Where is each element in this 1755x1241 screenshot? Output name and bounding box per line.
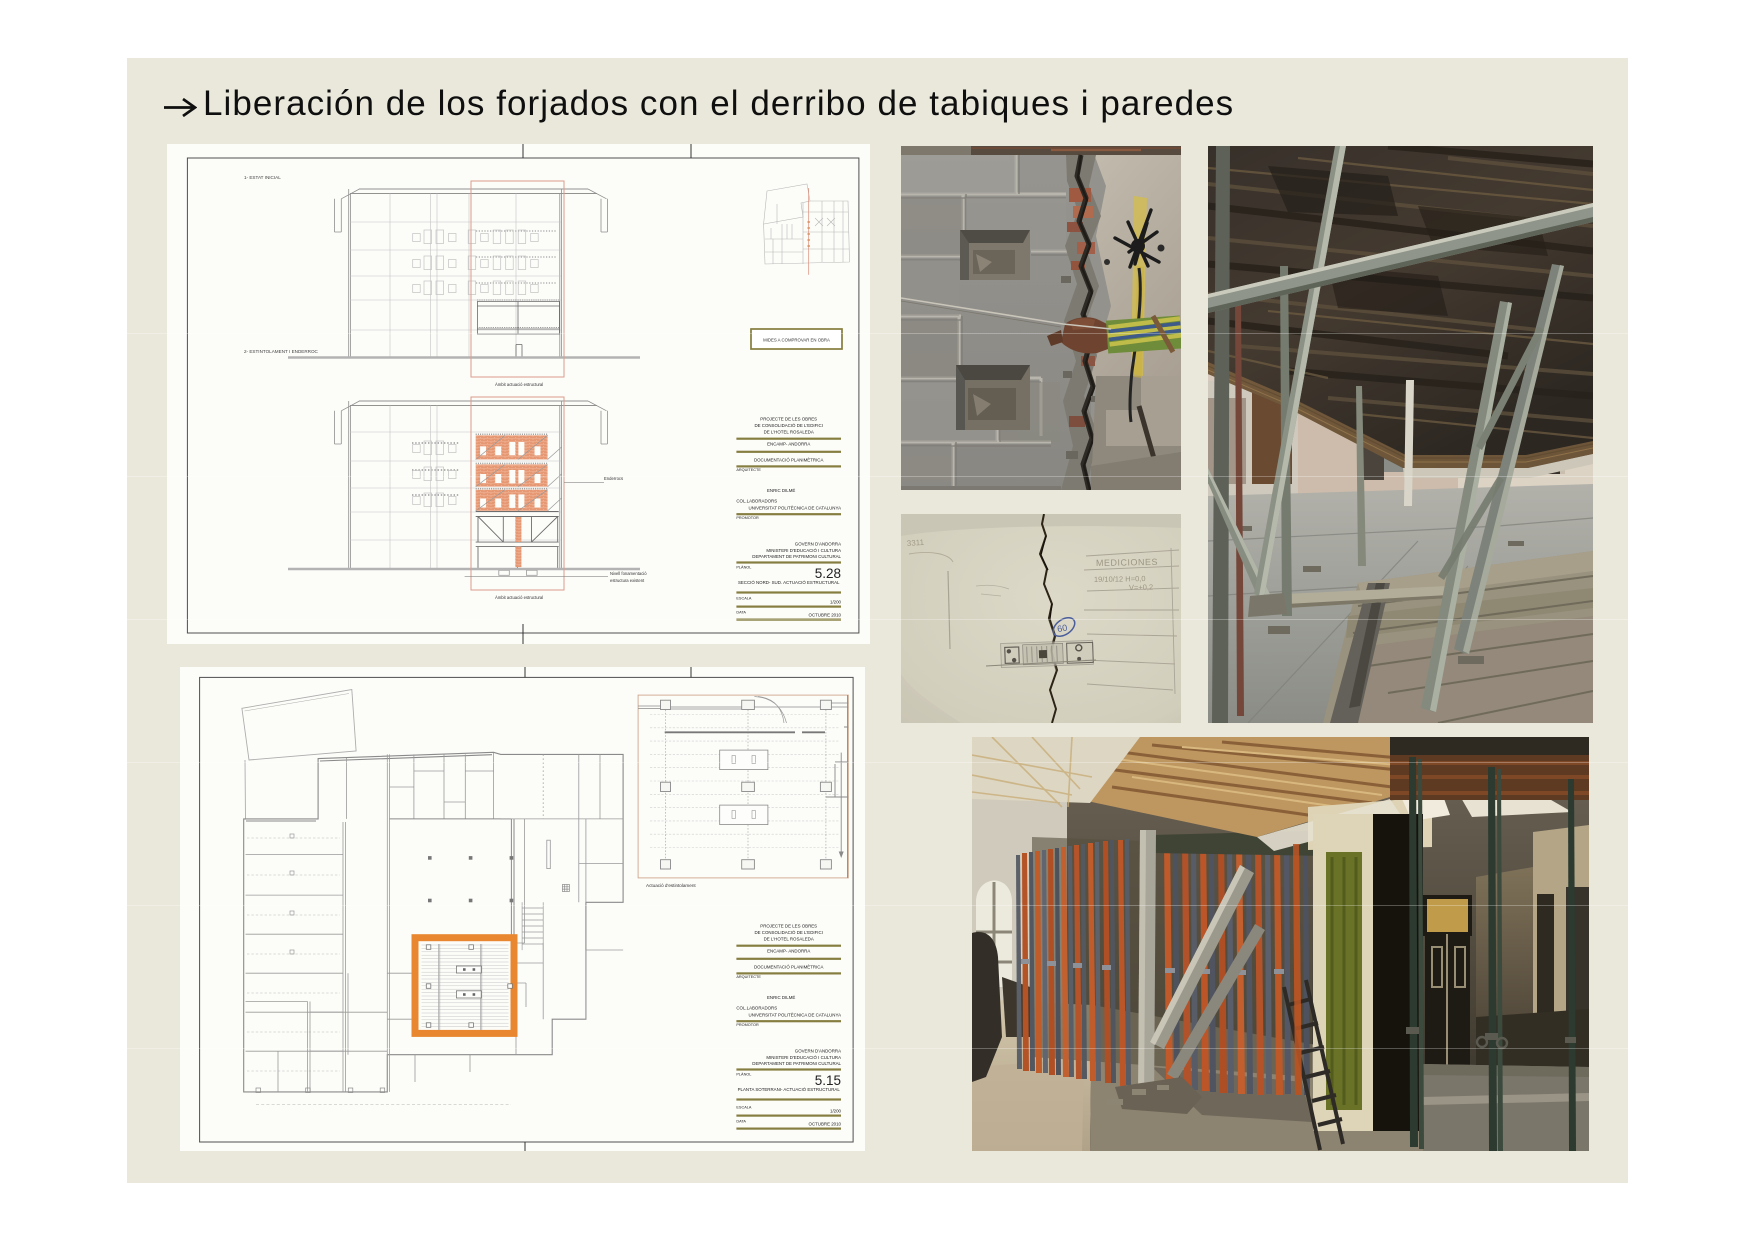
svg-text:DE L'HOTEL ROSALEDA: DE L'HOTEL ROSALEDA (764, 429, 814, 434)
svg-text:PROJECTE DE LES OBRES: PROJECTE DE LES OBRES (760, 417, 817, 422)
svg-text:MINISTERI D'EDUCACIÓ I CULTURA: MINISTERI D'EDUCACIÓ I CULTURA (766, 1055, 841, 1060)
svg-text:DE CONSOLIDACIÓ DE L'EDIFICI: DE CONSOLIDACIÓ DE L'EDIFICI (754, 930, 822, 935)
svg-text:1- ESTAT INICIAL: 1- ESTAT INICIAL (244, 175, 281, 180)
svg-text:SECCIÓ NORD- SUD. ACTUACIÓ EST: SECCIÓ NORD- SUD. ACTUACIÓ ESTRUCTURAL (738, 580, 840, 585)
svg-text:ARQUITECTE: ARQUITECTE (736, 468, 761, 472)
svg-text:DOCUMENTACIÓ PLANIMÈTRICA: DOCUMENTACIÓ PLANIMÈTRICA (754, 964, 824, 969)
svg-text:UNIVERSITAT POLITÈCNICA DE CAT: UNIVERSITAT POLITÈCNICA DE CATALUNYA (749, 1012, 842, 1017)
svg-text:OCTUBRE 2010: OCTUBRE 2010 (809, 1121, 842, 1126)
svg-text:estructura existent: estructura existent (610, 578, 645, 583)
svg-text:DE CONSOLIDACIÓ DE L'EDIFICI: DE CONSOLIDACIÓ DE L'EDIFICI (754, 423, 822, 428)
svg-text:DATA: DATA (736, 1120, 746, 1124)
svg-text:ARQUITECTE: ARQUITECTE (736, 975, 761, 979)
svg-text:UNIVERSITAT POLITÈCNICA DE CAT: UNIVERSITAT POLITÈCNICA DE CATALUNYA (749, 505, 842, 510)
svg-text:Àmbit actuació estructural: Àmbit actuació estructural (495, 382, 543, 387)
svg-text:MIDES A COMPROVAR EN OBRA: MIDES A COMPROVAR EN OBRA (763, 338, 830, 343)
svg-text:COL.LABORADORS: COL.LABORADORS (736, 1006, 777, 1011)
svg-text:PLANTA SOTERRANI- ACTUACIÓ EST: PLANTA SOTERRANI- ACTUACIÓ ESTRUCTURAL (738, 1087, 841, 1092)
svg-text:ENCAMP- ANDORRA: ENCAMP- ANDORRA (767, 949, 810, 954)
svg-text:60: 60 (1056, 623, 1068, 635)
svg-text:COL.LABORADORS: COL.LABORADORS (736, 499, 777, 504)
svg-text:PLÀNOL: PLÀNOL (736, 1072, 751, 1076)
svg-text:ENRIC DILMÉ: ENRIC DILMÉ (767, 488, 795, 493)
svg-text:ENRIC DILMÉ: ENRIC DILMÉ (767, 995, 795, 1000)
svg-text:OCTUBRE 2010: OCTUBRE 2010 (809, 612, 842, 617)
svg-text:PLÀNOL: PLÀNOL (736, 565, 751, 569)
svg-text:1/200: 1/200 (830, 1109, 842, 1114)
svg-text:MINISTERI D'EDUCACIÓ I CULTURA: MINISTERI D'EDUCACIÓ I CULTURA (766, 548, 841, 553)
svg-text:DOCUMENTACIÓ PLANIMÈTRICA: DOCUMENTACIÓ PLANIMÈTRICA (754, 457, 824, 462)
svg-text:3311: 3311 (907, 538, 925, 548)
svg-text:5.15: 5.15 (815, 1073, 841, 1088)
svg-text:DE L'HOTEL ROSALEDA: DE L'HOTEL ROSALEDA (764, 936, 814, 941)
svg-text:Nivell fonamentació: Nivell fonamentació (610, 571, 647, 576)
svg-text:MEDICIONES: MEDICIONES (1096, 557, 1158, 568)
svg-text:GOVERN D'ANDORRA: GOVERN D'ANDORRA (795, 542, 841, 547)
svg-text:ESCALA: ESCALA (736, 596, 751, 600)
svg-text:DEPARTAMENT DE PATRIMONI CULTU: DEPARTAMENT DE PATRIMONI CULTURAL (752, 1061, 841, 1066)
svg-text:PROMOTOR: PROMOTOR (736, 1023, 759, 1027)
svg-text:ESCALA: ESCALA (736, 1105, 751, 1109)
svg-text:V=+0,2: V=+0,2 (1129, 583, 1153, 592)
svg-text:PROJECTE DE LES OBRES: PROJECTE DE LES OBRES (760, 924, 817, 929)
svg-text:Àmbit actuació estructural: Àmbit actuació estructural (495, 595, 543, 600)
svg-text:DEPARTAMENT DE PATRIMONI CULTU: DEPARTAMENT DE PATRIMONI CULTURAL (752, 554, 841, 559)
svg-text:GOVERN D'ANDORRA: GOVERN D'ANDORRA (795, 1049, 841, 1054)
svg-text:PROMOTOR: PROMOTOR (736, 516, 759, 520)
svg-text:ENCAMP- ANDORRA: ENCAMP- ANDORRA (767, 442, 810, 447)
svg-text:2- ESTINTOLAMENT I ENDERROC: 2- ESTINTOLAMENT I ENDERROC (244, 349, 319, 354)
svg-text:DATA: DATA (736, 611, 746, 615)
svg-text:Actuació d'estintolament: Actuació d'estintolament (646, 883, 696, 888)
svg-text:1/200: 1/200 (830, 600, 842, 605)
svg-text:5.28: 5.28 (815, 566, 841, 581)
